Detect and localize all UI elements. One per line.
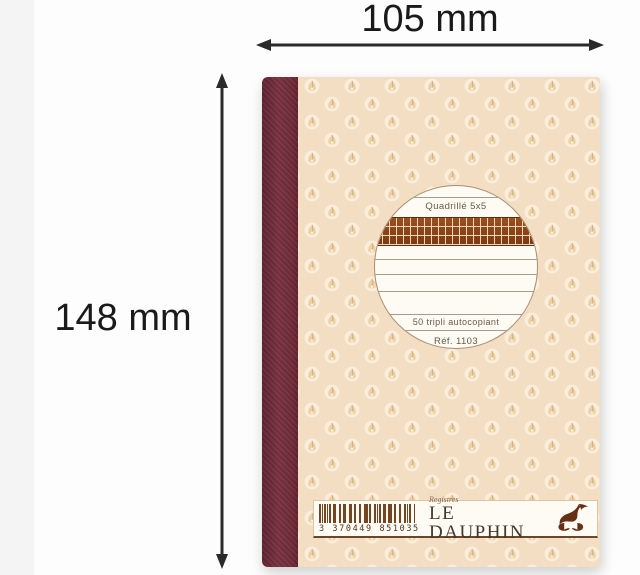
ruled-line bbox=[375, 197, 537, 198]
width-arrow bbox=[256, 37, 604, 53]
brand-block: Registres LE DAUPHIN bbox=[415, 495, 555, 542]
reference-label: Réf. 1103 bbox=[375, 336, 537, 347]
height-dimension-label: 148 mm bbox=[28, 297, 218, 340]
barcode-digits: 3 370449 851035 bbox=[319, 524, 415, 534]
ruled-line bbox=[375, 330, 537, 331]
cover-label-circle: Quadrillé 5x5 50 tripli autocopiant Réf.… bbox=[374, 185, 538, 349]
sheets-label: 50 tripli autocopiant bbox=[375, 317, 537, 327]
brand-name: LE DAUPHIN bbox=[429, 504, 555, 542]
notebook-spine bbox=[262, 77, 298, 567]
product-photo: 105 mm 148 mm bbox=[0, 0, 640, 575]
barcode-bars bbox=[319, 504, 415, 523]
width-dimension-label: 105 mm bbox=[335, 0, 525, 41]
ruled-line bbox=[375, 274, 537, 275]
brand-strip: 3 370449 851035 Registres LE DAUPHIN bbox=[313, 500, 598, 538]
notebook-cover: Quadrillé 5x5 50 tripli autocopiant Réf.… bbox=[262, 77, 600, 567]
quadrille-sample-band bbox=[375, 217, 537, 246]
ruled-line bbox=[375, 259, 537, 260]
grid-type-label: Quadrillé 5x5 bbox=[375, 201, 537, 212]
dolphin-icon bbox=[555, 504, 591, 534]
barcode: 3 370449 851035 bbox=[319, 504, 415, 534]
ruled-line bbox=[375, 291, 537, 292]
background-band bbox=[0, 0, 34, 575]
height-arrow bbox=[214, 73, 230, 569]
ruled-line bbox=[375, 314, 537, 315]
